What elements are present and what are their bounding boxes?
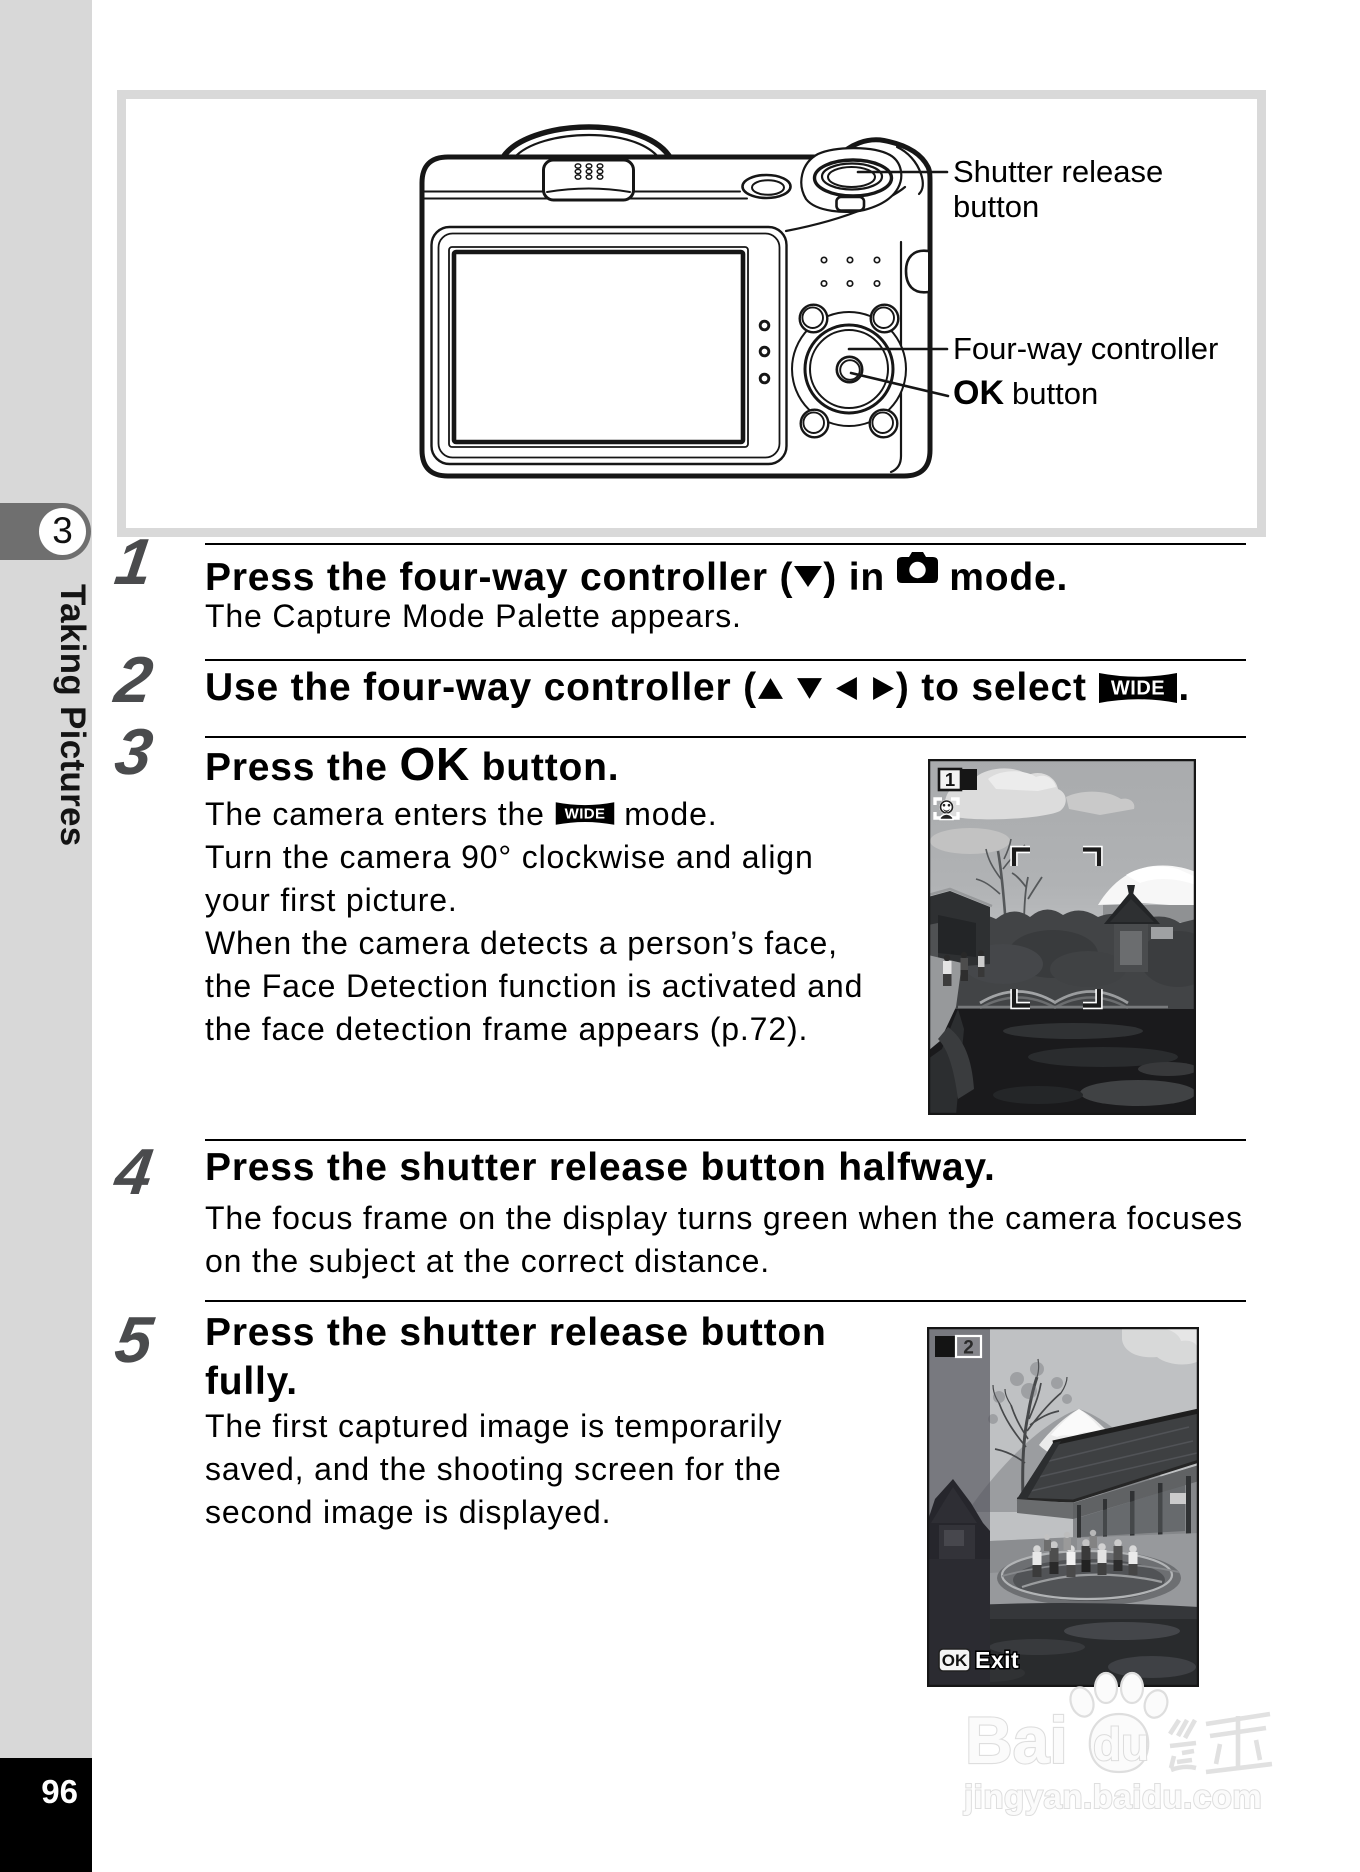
svg-text:button: button: [953, 189, 1039, 224]
svg-text:Four-way controller: Four-way controller: [953, 331, 1218, 366]
svg-text:WIDE: WIDE: [564, 805, 605, 822]
svg-text:jingyan.baidu.com: jingyan.baidu.com: [963, 1778, 1262, 1815]
svg-text:OKbutton: OKbutton: [953, 374, 1098, 412]
svg-text:WIDE: WIDE: [1111, 678, 1165, 700]
svg-text:Shutter release: Shutter release: [953, 154, 1163, 189]
svg-text:Bai: Bai: [965, 1703, 1068, 1777]
svg-text:du: du: [1093, 1718, 1149, 1770]
svg-text:1: 1: [945, 769, 955, 790]
svg-text:2: 2: [963, 1338, 974, 1359]
